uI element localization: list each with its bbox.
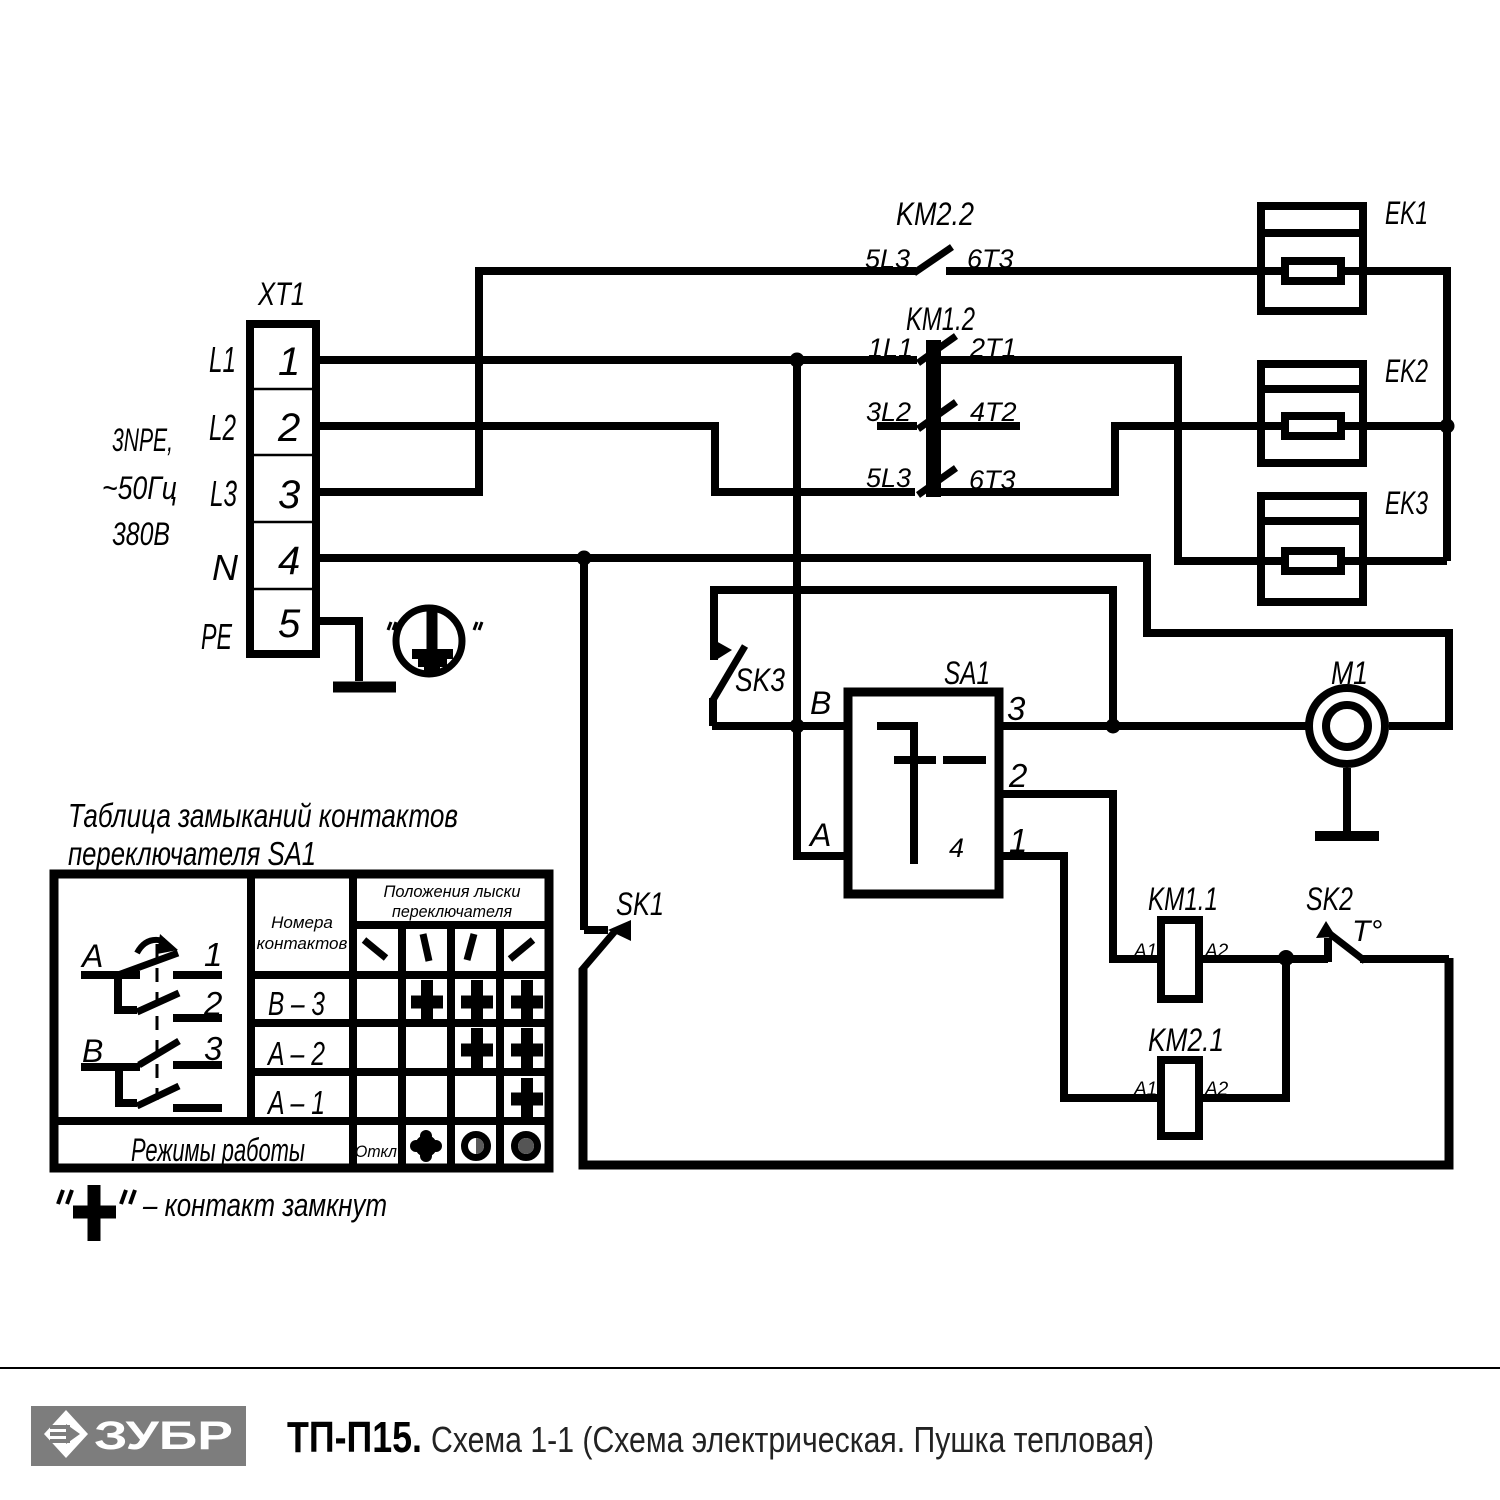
- svg-text:A – 1: A – 1: [266, 1084, 325, 1121]
- svg-text:L1: L1: [209, 339, 236, 380]
- svg-text:N: N: [212, 547, 239, 588]
- svg-text:1: 1: [204, 936, 222, 973]
- svg-text:ТП-П15.: ТП-П15.: [287, 1413, 422, 1462]
- svg-text:SA1: SA1: [944, 655, 990, 691]
- svg-text:A2: A2: [1204, 941, 1229, 962]
- svg-text:EK1: EK1: [1385, 195, 1428, 231]
- svg-text:6T3: 6T3: [967, 244, 1014, 274]
- svg-text:KM2.1: KM2.1: [1148, 1022, 1224, 1058]
- svg-text:3NPE,: 3NPE,: [112, 422, 173, 458]
- svg-text:A: A: [80, 938, 103, 974]
- svg-text:EK2: EK2: [1385, 353, 1428, 389]
- svg-text:4: 4: [278, 539, 300, 583]
- svg-text:A1: A1: [1133, 941, 1157, 962]
- svg-text:EK3: EK3: [1385, 485, 1428, 521]
- svg-text:~50Гц: ~50Гц: [102, 470, 177, 506]
- svg-text:1: 1: [278, 340, 300, 384]
- svg-text:4T2: 4T2: [970, 397, 1017, 427]
- svg-text:– контакт замкнут: – контакт замкнут: [142, 1187, 387, 1223]
- svg-text:ЗУБР: ЗУБР: [94, 1414, 233, 1458]
- svg-text:1: 1: [1009, 822, 1027, 859]
- svg-text:5L3: 5L3: [866, 463, 911, 493]
- svg-text:A2: A2: [1204, 1079, 1229, 1100]
- svg-text:L2: L2: [209, 407, 236, 448]
- svg-text:Схема 1-1 (Схема электрическая: Схема 1-1 (Схема электрическая. Пушка те…: [431, 1419, 1154, 1460]
- svg-text:2T1: 2T1: [969, 333, 1017, 363]
- svg-text:SK2: SK2: [1306, 881, 1353, 917]
- svg-text:2: 2: [1008, 757, 1027, 794]
- svg-text:3: 3: [1007, 690, 1026, 727]
- svg-text:5L3: 5L3: [865, 244, 910, 274]
- svg-text:PE: PE: [201, 616, 233, 657]
- svg-text:переключателя: переключателя: [392, 902, 512, 921]
- svg-text:Положения лыски: Положения лыски: [384, 882, 522, 901]
- svg-text:5: 5: [278, 602, 301, 646]
- svg-text:Откл: Откл: [355, 1142, 397, 1161]
- svg-text:B – 3: B – 3: [268, 985, 325, 1022]
- svg-text:B: B: [810, 685, 831, 721]
- svg-text:Режимы работы: Режимы работы: [131, 1132, 305, 1168]
- svg-text:2: 2: [277, 406, 300, 450]
- svg-text:Таблица замыканий контактов: Таблица замыканий контактов: [68, 797, 458, 834]
- svg-text:A1: A1: [1133, 1079, 1157, 1100]
- svg-text:6T3: 6T3: [969, 465, 1016, 495]
- svg-text:1L1: 1L1: [868, 333, 913, 363]
- svg-text:Номера: Номера: [271, 913, 333, 932]
- svg-text:4: 4: [949, 833, 964, 863]
- svg-text:SK1: SK1: [616, 886, 664, 922]
- svg-text:KM2.2: KM2.2: [896, 196, 974, 232]
- svg-text:3L2: 3L2: [866, 397, 911, 427]
- svg-text:3: 3: [278, 473, 300, 517]
- svg-text:SK3: SK3: [735, 662, 785, 698]
- svg-text:XT1: XT1: [257, 276, 305, 312]
- svg-text:KM1.1: KM1.1: [1148, 881, 1218, 917]
- svg-text:A: A: [808, 817, 831, 853]
- svg-text:380В: 380В: [112, 516, 170, 552]
- svg-text:L3: L3: [210, 473, 237, 514]
- svg-text:A – 2: A – 2: [266, 1035, 325, 1072]
- svg-text:контактов: контактов: [257, 934, 348, 953]
- svg-text:T°: T°: [1352, 915, 1382, 948]
- svg-text:переключателя SA1: переключателя SA1: [68, 835, 316, 872]
- svg-text:KM1.2: KM1.2: [906, 301, 975, 337]
